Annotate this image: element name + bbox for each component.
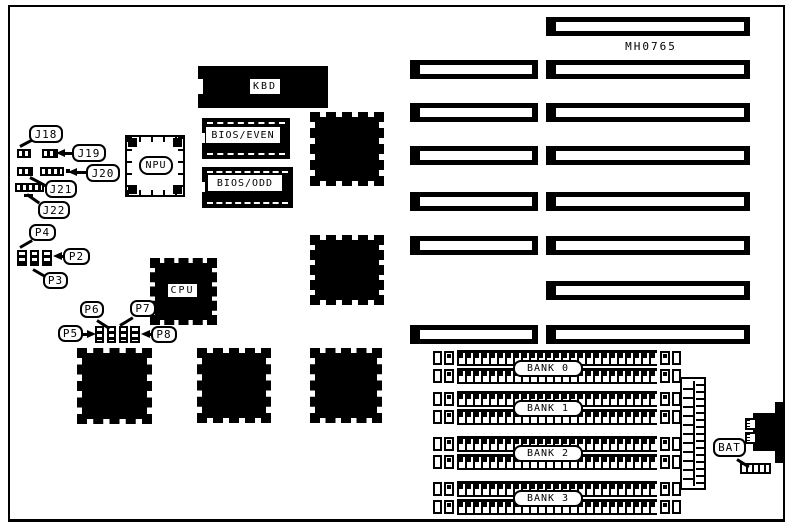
bank2-label: BANK 2 xyxy=(513,445,583,462)
expansion-slot xyxy=(410,192,538,211)
bank0-label: BANK 0 xyxy=(513,360,583,377)
bios-even-dash xyxy=(207,153,285,155)
simm-latch xyxy=(444,410,454,424)
expansion-slot xyxy=(546,236,750,255)
bank3-label: BANK 3 xyxy=(513,490,583,507)
simm-latch xyxy=(660,482,670,496)
simm-clip xyxy=(433,410,442,424)
cpu-chip: CPU xyxy=(155,263,212,320)
pin-callout-p6: P6 xyxy=(80,301,104,318)
jumper-p8 xyxy=(130,326,140,343)
pin-callout-p2: P2 xyxy=(63,248,90,265)
bios-even-label: BIOS/EVEN xyxy=(206,127,280,143)
jumper-callout-j20: J20 xyxy=(86,164,120,182)
motherboard-diagram: MH0765 KBD BIOS/EVEN BIOS/ODD NPU xyxy=(0,0,791,527)
qfp-chip xyxy=(202,353,266,418)
simm-clip xyxy=(672,500,681,514)
simm-latch xyxy=(660,500,670,514)
callout-arrow xyxy=(87,330,96,338)
expansion-slot xyxy=(546,146,750,165)
kbd-chip-label: KBD xyxy=(249,78,281,95)
jumper-p2 xyxy=(42,250,52,266)
simm-clip xyxy=(433,392,442,406)
expansion-slot xyxy=(546,60,750,79)
part-number: MH0765 xyxy=(623,40,679,53)
expansion-slot xyxy=(410,103,538,122)
pin-callout-p3: P3 xyxy=(43,272,68,289)
npu-label: NPU xyxy=(139,156,173,175)
cpu-label: CPU xyxy=(167,283,198,298)
npu-corner xyxy=(173,185,182,194)
npu-corner xyxy=(128,138,137,147)
jumper-p4 xyxy=(17,250,27,266)
qfp-chip xyxy=(315,353,377,418)
jumper-p7 xyxy=(119,326,128,343)
expansion-slot xyxy=(546,103,750,122)
bank1-label: BANK 1 xyxy=(513,400,583,417)
bios-odd-dash xyxy=(207,202,288,204)
expansion-slot xyxy=(410,325,538,344)
power-pins xyxy=(683,381,695,486)
simm-latch xyxy=(660,437,670,451)
simm-clip xyxy=(433,351,442,365)
jumper-p5 xyxy=(95,326,104,343)
simm-latch xyxy=(444,392,454,406)
pin-callout-p4: P4 xyxy=(29,224,56,241)
simm-latch xyxy=(660,392,670,406)
jumper-j18 xyxy=(17,149,31,158)
bios-odd-chip: BIOS/ODD xyxy=(202,167,293,208)
simm-clip xyxy=(672,351,681,365)
simm-latch xyxy=(660,369,670,383)
simm-latch xyxy=(444,369,454,383)
expansion-slot xyxy=(546,192,750,211)
jumper-p3 xyxy=(30,250,39,266)
din-pin-header xyxy=(745,418,757,430)
jumper-callout-j18: J18 xyxy=(29,125,63,143)
battery-callout: BAT xyxy=(713,438,746,457)
qfp-chip xyxy=(82,353,147,419)
jumper-callout-j22: J22 xyxy=(38,201,70,219)
simm-clip xyxy=(433,500,442,514)
simm-clip xyxy=(433,455,442,469)
bios-odd-label: BIOS/ODD xyxy=(208,175,282,191)
simm-clip xyxy=(433,437,442,451)
bios-odd-notch xyxy=(202,182,205,192)
din-connector-body xyxy=(753,413,784,451)
kbd-notch xyxy=(198,79,203,94)
npu-corner xyxy=(128,185,137,194)
din-pin-header xyxy=(745,432,757,444)
pin-callout-p7: P7 xyxy=(130,300,156,317)
simm-latch xyxy=(444,437,454,451)
simm-latch xyxy=(444,500,454,514)
jumper-j20 xyxy=(40,167,64,176)
bios-odd-dash xyxy=(207,171,288,173)
simm-latch xyxy=(444,455,454,469)
npu-socket: NPU xyxy=(125,135,185,197)
simm-clip xyxy=(433,482,442,496)
expansion-slot xyxy=(546,325,750,344)
bios-even-dash xyxy=(207,122,285,124)
jumper-j21 xyxy=(17,167,33,176)
expansion-slot xyxy=(410,60,538,79)
simm-latch xyxy=(660,351,670,365)
expansion-slot xyxy=(546,17,750,36)
qfp-chip xyxy=(315,117,379,181)
jumper-callout-j21: J21 xyxy=(45,180,77,198)
simm-latch xyxy=(444,482,454,496)
simm-clip xyxy=(433,369,442,383)
simm-latch xyxy=(660,455,670,469)
bios-even-chip: BIOS/EVEN xyxy=(202,118,290,159)
qfp-chip xyxy=(315,240,379,300)
simm-latch xyxy=(444,351,454,365)
power-pins xyxy=(696,379,704,488)
simm-latch xyxy=(660,410,670,424)
bios-even-notch xyxy=(202,133,205,143)
power-connector xyxy=(680,377,706,490)
kbd-chip: KBD xyxy=(198,66,328,108)
pin-callout-p5: P5 xyxy=(58,325,83,342)
expansion-slot xyxy=(410,236,538,255)
npu-corner xyxy=(173,138,182,147)
expansion-slot xyxy=(546,281,750,300)
expansion-slot xyxy=(410,146,538,165)
jumper-callout-j19: J19 xyxy=(72,144,106,162)
pin-callout-p8: P8 xyxy=(151,326,177,343)
